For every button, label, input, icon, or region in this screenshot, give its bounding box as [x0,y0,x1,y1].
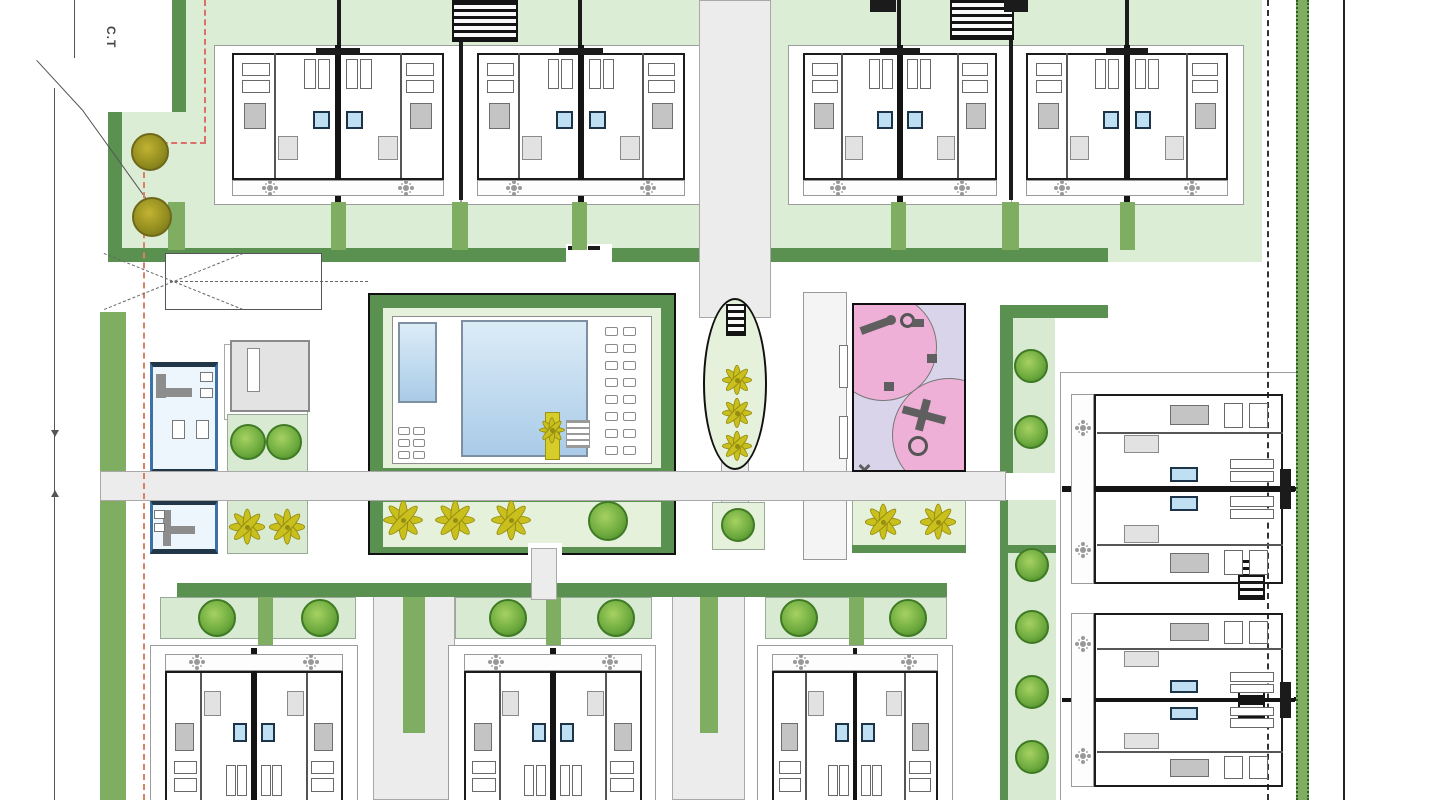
walk-median-2 [700,597,718,733]
tree-icon [489,599,527,637]
duplex-furn [912,723,929,751]
duplex-innerline [1097,751,1283,753]
terrace-table-icon [906,659,912,665]
duplex-innerline [306,673,308,800]
duplex-bottom-3 [759,648,951,800]
palm-tree-icon [865,504,901,540]
duplex-top-3 [788,45,1012,202]
duplex-bath [532,723,546,742]
pool-small [398,322,437,403]
duplex-furnl [620,136,640,160]
duplex-bedv [261,765,271,796]
stair-tower-1 [452,0,518,42]
duplex-bedv [346,59,358,89]
sun-lounger [413,427,425,435]
spring-rider-icon [886,315,896,325]
tree-icon [198,599,236,637]
duplex-furn [814,103,834,130]
duplex-bedv [603,59,615,89]
duplex-bedh [406,80,434,93]
rcol-panel-top [1013,318,1055,473]
median-top-6 [1120,202,1135,250]
duplex-innerline [1186,53,1188,178]
sun-lounger [623,412,636,421]
duplex-innerline [1097,648,1283,650]
palm-tree-icon [920,504,956,540]
duplex-bedh [812,80,838,93]
palm-tree-icon [722,431,752,461]
duplex-bedh [812,63,838,76]
duplex-innerline [274,53,276,178]
ct-label: C.T [104,26,118,48]
duplex-bedv [1148,59,1159,89]
site-plan: C.T [0,0,1440,800]
tree-icon [597,599,635,637]
duplex-bedv [861,765,870,796]
duplex-bottom-2 [450,648,656,800]
palm-center [509,518,514,523]
duplex-furnl [278,136,298,160]
duplex-bedh [406,63,434,76]
road-line-right [1343,0,1345,800]
duplex-bedh [1036,63,1063,76]
duplex-furn [1170,623,1210,641]
duplex-furnl [502,691,519,716]
duplex-bedv [572,765,582,796]
left-green-strip [100,312,126,800]
duplex-furn [474,723,493,751]
palm-center [881,520,886,525]
duplex-bedh [242,80,270,93]
chair-1 [172,420,185,439]
duplex-dark [1280,682,1290,718]
duplex-innerline [518,53,520,178]
sun-lounger [605,378,618,387]
duplex-furnl [587,691,604,716]
duplex-right-2 [1062,600,1295,800]
duplex-bath [346,111,363,130]
duplex-furn [1170,759,1210,777]
duplex-bedh [1249,550,1268,575]
duplex-party [853,648,858,800]
palm-tree-icon [722,398,752,428]
duplex-bedh [610,761,634,774]
sun-lounger [605,446,618,455]
duplex-bedh [311,778,334,791]
duplex-bedv [828,765,837,796]
duplex-bedh [962,63,988,76]
sun-lounger [623,344,636,353]
duplex-party [550,648,555,800]
duplex-bedh [1224,403,1243,428]
duplex-bath [1135,111,1151,130]
duplex-bedv [536,765,546,796]
island-stair [726,304,746,336]
duplex-bedv [869,59,880,89]
duplex-top-1 [216,45,460,202]
duplex-bedh [1249,403,1268,428]
median-top-3 [572,202,587,250]
tree-icon [588,501,628,541]
topleft-green-edge [172,0,186,116]
palm-tree-icon [491,500,531,540]
duplex-furn [614,723,633,751]
duplex-bath [1170,467,1198,482]
duplex-terr [477,180,686,196]
duplex-terr [803,180,998,196]
duplex-party [578,45,584,202]
tree-icon [1014,415,1048,449]
duplex-dark [1280,469,1290,508]
south-path [531,548,557,600]
duplex-innerline [200,673,202,800]
duplex-innerline [1097,544,1283,546]
sun-lounger [605,327,618,336]
median-top-4 [891,202,906,250]
duplex-furn [244,103,266,130]
entrance-axis [170,281,368,282]
duplex-bedv [360,59,372,89]
duplex-terr [1071,394,1095,583]
walk-median-1 [403,597,425,733]
sun-lounger [398,451,410,459]
palm-center [453,518,458,523]
duplex-top-2 [461,45,701,202]
palm-tree-icon [383,500,423,540]
sun-lounger [605,395,618,404]
duplex-terr [772,654,939,670]
duplex-furn [1170,405,1210,425]
duplex-party [1062,698,1295,703]
duplex-bedv [1108,59,1119,89]
sun-lounger [413,451,425,459]
duplex-furnl [937,136,955,160]
duplex-bath [233,723,247,742]
sun-lounger [623,429,636,438]
palm-center [401,518,406,523]
palm-center [245,525,250,530]
duplex-innerline [642,53,644,178]
bench-2 [839,416,848,459]
sun-lounger [398,439,410,447]
bench-1 [839,345,848,388]
main-walkway [100,471,1006,501]
desk-2 [156,374,166,398]
duplex-bath [907,111,923,130]
duplex-furn [652,103,674,130]
duplex-bedv [1230,509,1274,520]
garden-median-2 [546,597,561,652]
palm-center [735,444,740,449]
duplex-furnl [1124,733,1159,749]
duplex-furnl [1124,525,1159,543]
duplex-bedv [1230,672,1274,682]
duplex-bedh [311,761,334,774]
duplex-furnl [845,136,863,160]
palm-center [285,525,290,530]
tree-icon [1014,349,1048,383]
duplex-bedh [174,761,197,774]
duplex-bedh [648,80,676,93]
office-bldg [230,340,310,412]
duplex-bath [313,111,330,130]
tree-icon [780,599,818,637]
palm-center [936,520,941,525]
duplex-bedh [242,63,270,76]
duplex-bath [1170,707,1198,721]
band-gap-dash2 [588,246,600,250]
toy-block-icon [927,354,937,363]
median-top-5 [1002,202,1019,250]
duplex-innerline [605,673,607,800]
duplex-right-1 [1062,380,1295,598]
sun-lounger [605,344,618,353]
duplex-bedv [226,765,236,796]
duplex-innerline [1066,53,1068,178]
toy-block-icon [884,382,894,391]
duplex-innerline [805,673,807,800]
roof-block-2 [1004,0,1028,12]
sun-lounger [623,361,636,370]
cabinet-4 [154,523,165,532]
terrace-table-icon [1189,185,1195,191]
median-top-2 [452,202,468,250]
duplex-furnl [378,136,398,160]
carousel-icon [912,319,924,327]
duplex-bath [1170,496,1198,511]
sun-lounger [398,427,410,435]
terrace-table-icon [1080,641,1086,647]
duplex-furn [314,723,332,751]
duplex-bedv [882,59,893,89]
duplex-furn [1195,103,1216,130]
duplex-dark [559,48,602,55]
road-edge-top [74,0,75,58]
duplex-bedv [1135,59,1146,89]
sun-lounger [623,378,636,387]
palm-tree-icon [269,509,305,545]
duplex-bedv [1230,684,1274,694]
duplex-innerline [400,53,402,178]
duplex-bath [261,723,275,742]
garden-median-3 [849,597,864,652]
terrace-table-icon [1080,753,1086,759]
duplex-innerline [841,53,843,178]
duplex-bath [861,723,874,742]
duplex-bedh [487,63,515,76]
tree-icon [266,424,302,460]
road-arrow-down [51,430,59,437]
sun-lounger [605,361,618,370]
tree-icon [1015,610,1049,644]
play-garden-edge [852,545,966,553]
road-corner-1 [36,60,83,111]
duplex-furnl [886,691,902,716]
duplex-party [335,45,341,202]
duplex-terr [165,654,342,670]
duplex-party [897,45,903,202]
duplex-terr [1071,613,1095,787]
median-top-1 [331,202,346,250]
tree-icon [1015,548,1049,582]
duplex-furn [489,103,511,130]
duplex-bedv [1230,471,1274,482]
duplex-bedh [779,761,801,774]
duplex-bedh [1224,756,1243,779]
duplex-bedh [909,778,931,791]
duplex-furnl [204,691,221,716]
duplex-furnl [287,691,304,716]
palm-center [550,428,555,433]
pool-steps [566,420,590,448]
duplex-bedv [548,59,560,89]
duplex-bedv [237,765,247,796]
boundary-top-v [204,0,206,142]
duplex-party [1062,486,1295,491]
cabinet-1 [200,372,213,382]
cabinet-3 [154,510,165,519]
sun-lounger [605,412,618,421]
olive-tree-icon [132,197,172,237]
duplex-bedh [610,778,634,791]
duplex-bedv [524,765,534,796]
duplex-bath [1103,111,1119,130]
palm-center [735,378,740,383]
topleft-green-edge2 [108,112,122,252]
tree-icon [230,424,266,460]
duplex-bedh [909,761,931,774]
duplex-bedv [1095,59,1106,89]
duplex-bedh [1224,621,1243,644]
duplex-bedv [304,59,316,89]
duplex-bedv [839,765,848,796]
duplex-bedv [907,59,918,89]
duplex-bedv [1230,496,1274,507]
duplex-innerline [1097,432,1283,434]
duplex-party [1124,45,1130,202]
duplex-bedv [1230,707,1274,717]
rcol-dark-v1 [1000,305,1013,473]
palm-tree-icon [435,500,475,540]
duplex-bedh [648,63,676,76]
duplex-bedh [1036,80,1063,93]
chair-2 [196,420,209,439]
olive-tree-icon [131,133,169,171]
duplex-bedh [174,778,197,791]
duplex-terr [1026,180,1228,196]
duplex-furnl [1070,136,1089,160]
boundary-green-strip [1296,0,1309,800]
duplex-party [251,648,256,800]
terrace-table-icon [645,185,651,191]
duplex-furnl [808,691,824,716]
duplex-bedh [1192,80,1219,93]
duplex-bottom-1 [152,648,356,800]
duplex-innerline [904,673,906,800]
duplex-bedh [1249,756,1268,779]
duplex-terr [464,654,643,670]
duplex-furn [1038,103,1059,130]
duplex-furn [175,723,193,751]
sun-lounger [623,395,636,404]
duplex-furn [966,103,986,130]
duplex-dark [1106,48,1148,55]
central-walkway [699,0,771,318]
duplex-dark [316,48,360,55]
duplex-bath [877,111,893,130]
duplex-bedh [1192,63,1219,76]
roof-block-1 [870,0,896,12]
sun-lounger [605,429,618,438]
terrace-table-icon [835,185,841,191]
duplex-furn [1170,553,1210,573]
palm-center [735,411,740,416]
duplex-bedv [1230,459,1274,470]
tree-icon [301,599,339,637]
duplex-bedh [472,778,496,791]
duplex-furn [410,103,432,130]
tree-icon [1015,675,1049,709]
tree-icon [1015,740,1049,774]
tree-icon [889,599,927,637]
duplex-dark [880,48,920,55]
road-arrow-up [51,490,59,497]
office-bldg-slot [247,348,260,392]
tree-icon [721,508,755,542]
playground [852,303,966,472]
road-edge-left [54,88,55,800]
duplex-bedv [272,765,282,796]
duplex-terr [232,180,444,196]
duplex-bedv [560,765,570,796]
duplex-furnl [1165,136,1184,160]
terrace-table-icon [1080,425,1086,431]
palm-tree-icon [539,417,565,443]
spinner-wheel-icon [908,436,928,456]
duplex-bath [1170,680,1198,694]
duplex-bedv [872,765,881,796]
duplex-bedv [561,59,573,89]
duplex-bedh [962,80,988,93]
terrace-table-icon [493,659,499,665]
duplex-bath [560,723,574,742]
duplex-furnl [522,136,542,160]
sun-lounger [413,439,425,447]
palm-tree-icon [722,365,752,395]
duplex-bedv [920,59,931,89]
garden-darkbar [177,583,947,597]
duplex-furnl [1124,435,1159,453]
desk-4 [171,526,195,534]
garden-median-1 [258,597,273,652]
duplex-bedh [472,761,496,774]
duplex-bedh [779,778,801,791]
duplex-bedh [487,80,515,93]
duplex-top-4 [1011,45,1243,202]
duplex-bedv [589,59,601,89]
duplex-furn [781,723,798,751]
duplex-innerline [499,673,501,800]
terrace-table-icon [1080,547,1086,553]
duplex-furnl [1124,651,1159,667]
boundary-main [143,142,145,800]
duplex-bedv [1230,718,1274,728]
palm-tree-icon [229,509,265,545]
cabinet-2 [200,388,213,398]
duplex-bedv [318,59,330,89]
duplex-bedh [1224,550,1243,575]
duplex-bath [835,723,848,742]
